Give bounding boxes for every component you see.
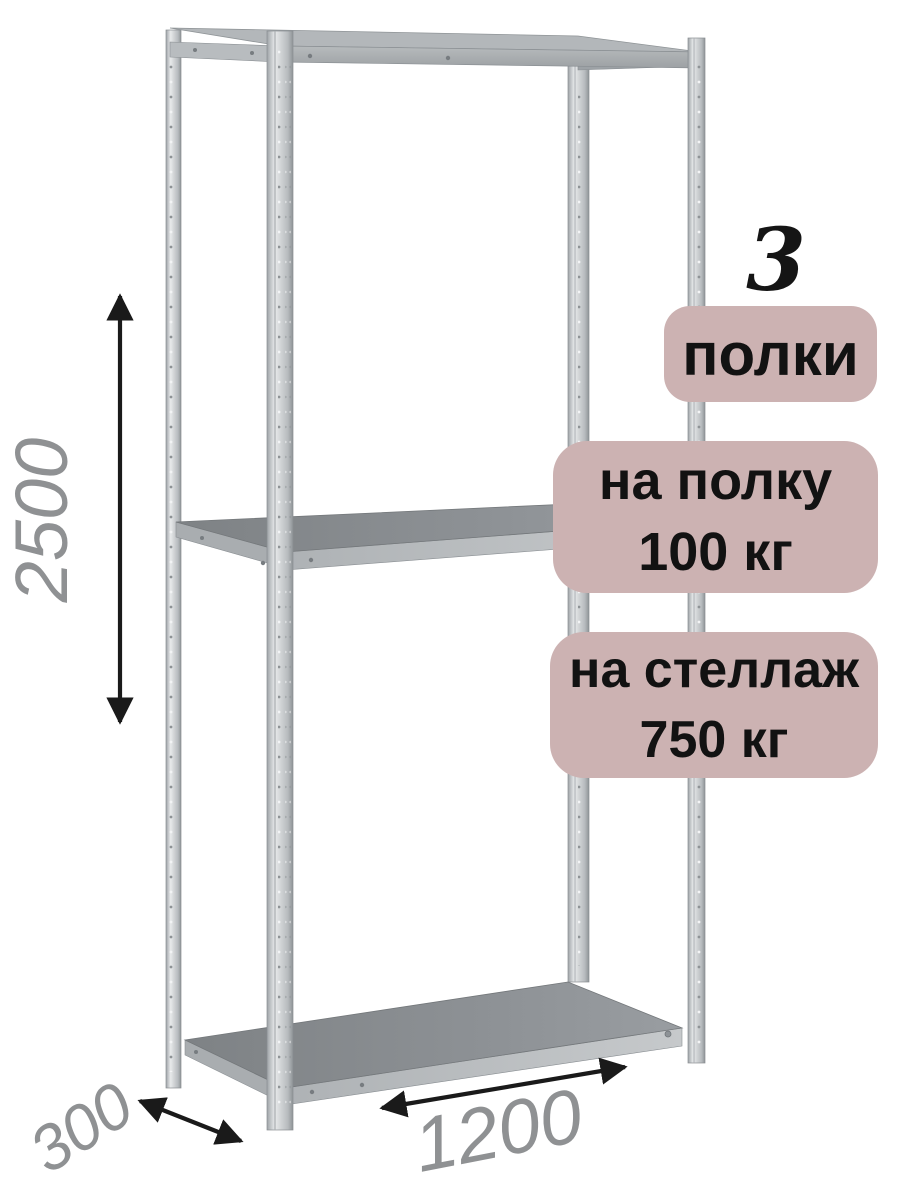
front-left-post bbox=[267, 31, 293, 1130]
top-beam-screw bbox=[193, 48, 197, 52]
front-left-post-perforations bbox=[286, 60, 291, 1105]
top-shelf bbox=[170, 28, 700, 70]
middle-shelf-screw bbox=[200, 536, 204, 540]
bottom-shelf-screw bbox=[360, 1083, 364, 1087]
rack-load-value: 750 кг bbox=[640, 705, 789, 775]
depth-label: 300 bbox=[17, 1068, 146, 1187]
shelf-count-value: 3 bbox=[728, 218, 824, 304]
top-shelf-left-beam bbox=[170, 42, 281, 62]
top-beam-screw bbox=[250, 51, 254, 55]
bottom-shelf bbox=[185, 982, 682, 1105]
height-label: 2500 bbox=[0, 438, 83, 604]
shelf-load-title: на полку bbox=[599, 446, 832, 517]
depth-dimension: 300 bbox=[17, 1068, 241, 1187]
shelf-count-caption: полки bbox=[682, 320, 858, 389]
middle-shelf-screw bbox=[261, 561, 265, 565]
rack-load-title: на стеллаж bbox=[569, 635, 859, 705]
bottom-shelf-screw bbox=[310, 1090, 314, 1094]
middle-shelf-screw bbox=[309, 558, 313, 562]
top-beam-screw bbox=[446, 56, 450, 60]
shelf-load-badge: на полку 100 кг bbox=[553, 441, 878, 593]
width-label: 1200 bbox=[407, 1073, 589, 1189]
front-left-post-perforations bbox=[278, 50, 283, 1112]
depth-arrow bbox=[140, 1101, 241, 1141]
height-dimension: 2500 bbox=[0, 296, 120, 722]
back-left-post bbox=[166, 30, 181, 1088]
rack-load-badge: на стеллаж 750 кг bbox=[550, 632, 878, 778]
shelving-rack-illustration: 2500 300 1200 bbox=[0, 0, 900, 1200]
top-beam-screw bbox=[308, 54, 312, 58]
bottom-shelf-screw bbox=[194, 1050, 198, 1054]
product-image: 2500 300 1200 3 полки на полку 100 кг на… bbox=[0, 0, 900, 1200]
shelf-load-value: 100 кг bbox=[638, 517, 793, 588]
shelf-count-badge: полки bbox=[664, 306, 877, 402]
back-left-post-perforations bbox=[169, 52, 174, 1072]
bottom-shelf-corner-screw bbox=[665, 1031, 671, 1037]
